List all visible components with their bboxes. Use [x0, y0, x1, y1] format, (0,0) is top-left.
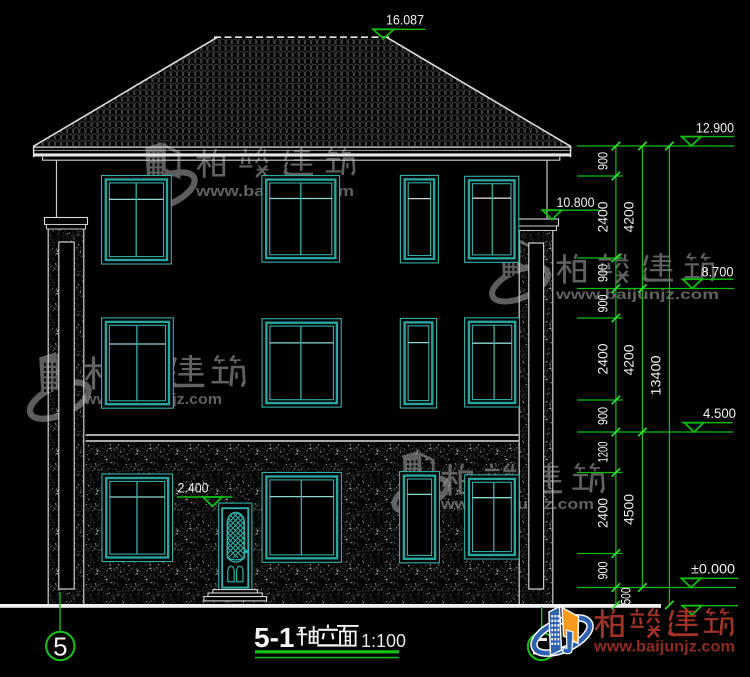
svg-text:900: 900: [596, 407, 611, 425]
svg-text:13400: 13400: [649, 356, 664, 396]
svg-text:10.800: 10.800: [557, 194, 595, 210]
svg-text:2.400: 2.400: [178, 480, 209, 496]
svg-text:16.087: 16.087: [386, 12, 424, 28]
svg-text:5: 5: [53, 632, 67, 662]
svg-text:4.500: 4.500: [703, 405, 736, 421]
svg-text:4200: 4200: [622, 345, 637, 376]
svg-text:2400: 2400: [596, 344, 611, 375]
svg-text:900: 900: [596, 264, 611, 282]
svg-text:900: 900: [596, 152, 611, 170]
svg-text:4200: 4200: [622, 202, 637, 233]
svg-text:www.baijunjz.com: www.baijunjz.com: [593, 639, 735, 656]
svg-text:900: 900: [596, 562, 611, 580]
svg-text:2400: 2400: [596, 202, 611, 233]
svg-text:5-1: 5-1: [254, 622, 294, 653]
svg-text:900: 900: [596, 295, 611, 313]
svg-text:1:100: 1:100: [361, 631, 406, 651]
svg-text:12.900: 12.900: [696, 120, 734, 136]
svg-text:500: 500: [619, 588, 634, 605]
svg-text:2400: 2400: [596, 498, 611, 528]
svg-text:4500: 4500: [622, 494, 637, 525]
svg-text:8.700: 8.700: [702, 264, 734, 280]
svg-text:1200: 1200: [596, 442, 611, 463]
svg-text:±0.000: ±0.000: [691, 561, 735, 577]
